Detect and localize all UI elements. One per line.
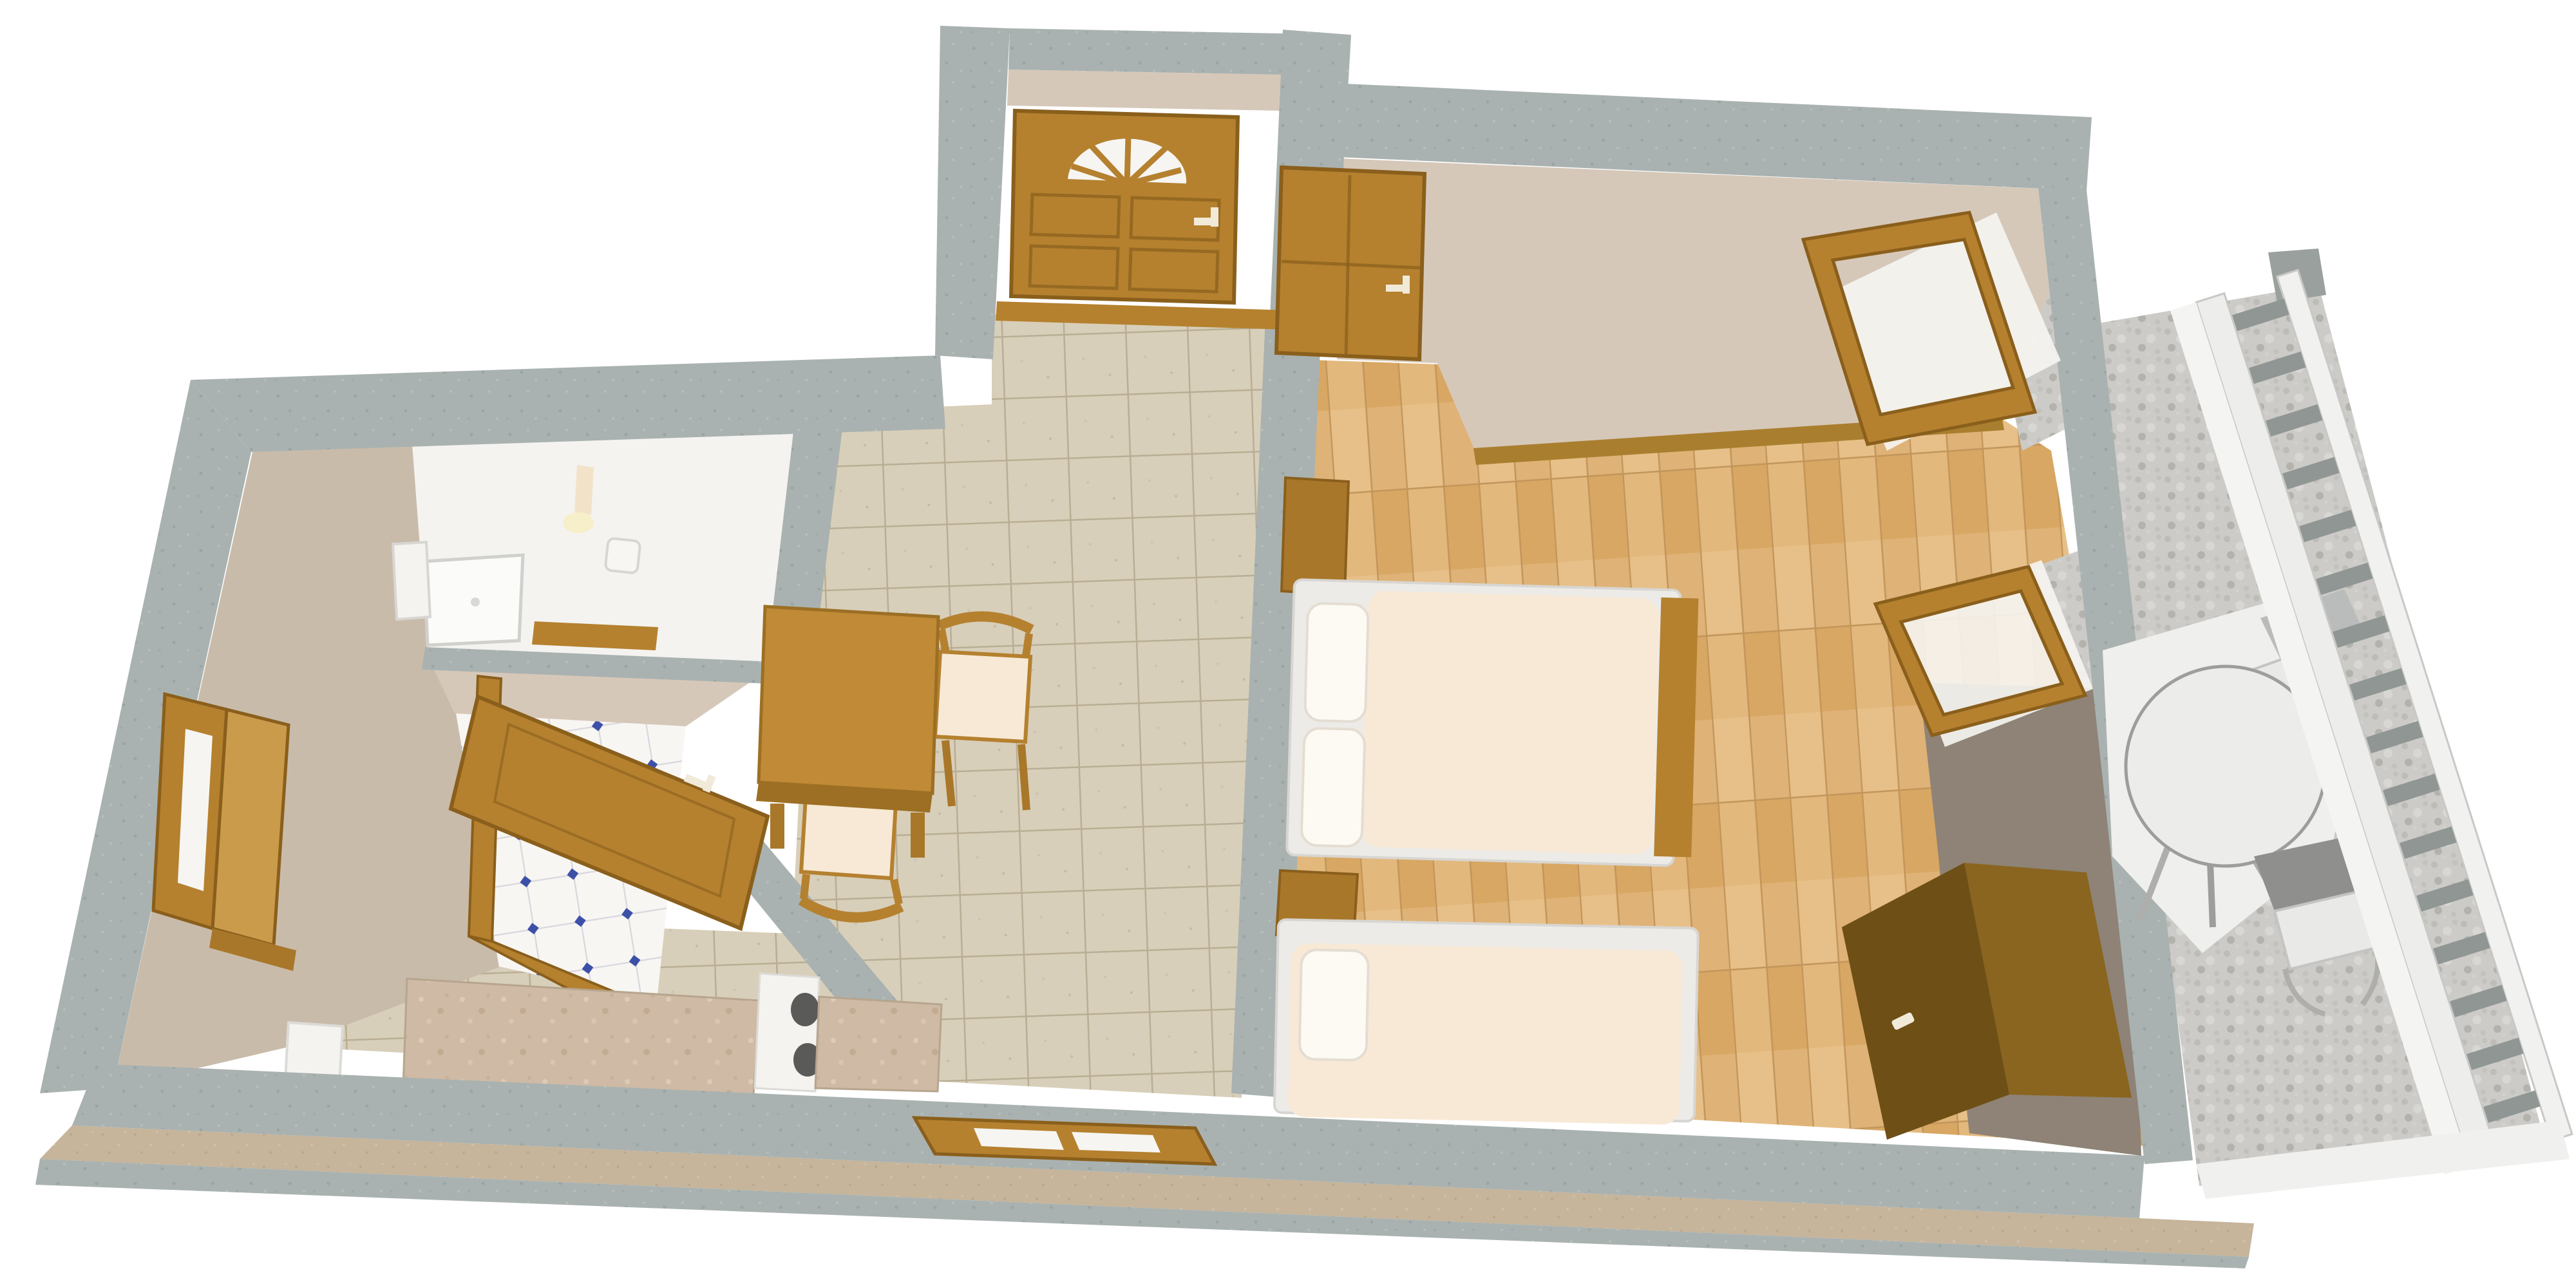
table-leg	[911, 813, 925, 858]
single-bed	[1274, 919, 1698, 1125]
bathroom-wall-lamp	[574, 465, 594, 515]
double-bed-pillow-2	[1301, 728, 1365, 847]
toilet	[605, 538, 641, 574]
stove-burner-1	[791, 993, 819, 1026]
bottom-window-pane-2	[1072, 1132, 1160, 1153]
floor-plan-rendering	[0, 0, 2576, 1271]
left-window-shutter	[213, 710, 289, 945]
double-bed-mattress	[1361, 590, 1659, 854]
kitchen-counter-right	[815, 997, 942, 1091]
bedroom-door	[1276, 167, 1425, 359]
chair-seat	[935, 652, 1030, 742]
washbasin	[393, 542, 430, 619]
table-leg	[770, 804, 784, 849]
single-bed-pillow	[1300, 950, 1369, 1060]
double-bed	[1287, 579, 1699, 866]
entry-lintel-face	[1007, 70, 1282, 111]
entry-door	[996, 111, 1289, 330]
bathroom-lamp-glow	[563, 513, 594, 533]
table-top	[759, 607, 938, 793]
entry-lintel-wall	[1009, 28, 1283, 75]
shower-drain	[471, 598, 480, 607]
double-bed-footboard	[1654, 598, 1698, 857]
floor-plan-stage	[0, 0, 2576, 1271]
nightstand-head	[1282, 478, 1349, 595]
double-bed-pillow-1	[1305, 603, 1368, 722]
